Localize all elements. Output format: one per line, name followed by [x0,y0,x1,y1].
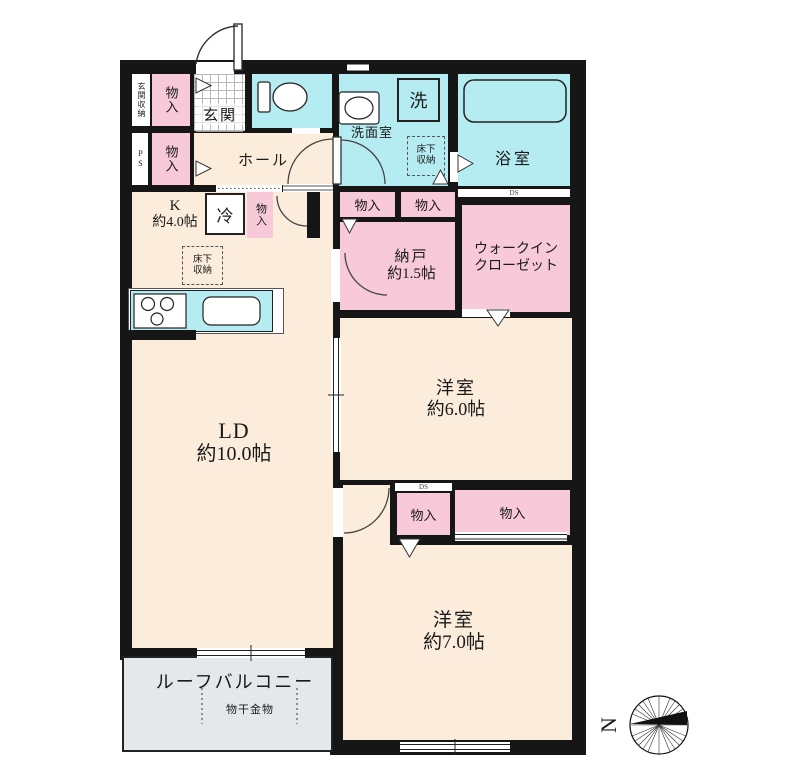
storage-g-label: 物入 [499,503,525,522]
refrigerator: 冷 [205,193,245,235]
sliding-door-storage-g [455,532,567,541]
walk-in-closet: ウォークイン クローゼット [462,205,570,312]
nando-door-gap [331,249,340,302]
hall-sliding-track [283,184,333,192]
vestibule-door-gap [333,488,343,537]
hall: ホール [194,133,333,185]
walk-in-closet-label: ウォークイン クローゼット [474,242,558,274]
underfloor-storage-washroom-label: 床下収納 [416,145,435,167]
pipe-space-label: PS [136,149,144,169]
duct-space-2-label: DS [419,483,428,491]
storage-g: 物入 [455,490,570,535]
underfloor-storage-kitchen: 床下収納 [182,246,223,285]
storage-c-label: 物入 [255,203,266,227]
kitchen-living-dining [132,192,333,648]
storage-c: 物入 [247,192,273,238]
underfloor-storage-kitchen-label: 床下収納 [193,255,212,277]
window-western7-south [400,742,510,752]
western-room-6: 洋室 約6.0帖 [340,318,572,480]
entrance-storage-label: 玄関収納 [137,82,145,118]
roof-balcony [122,656,333,752]
compass-icon [630,696,688,754]
refrigerator-label: 冷 [217,202,234,227]
storage-f-label: 物入 [410,505,436,524]
washing-machine-label: 洗 [410,87,428,113]
duct-space-1-label: DS [510,189,519,197]
duct-space-1: DS [458,189,570,197]
hall-open-boundary [216,185,282,192]
bath-doorway-gap [450,152,458,182]
sliding-door-ld-western6 [331,338,341,452]
western-room-7-vestibule [343,485,390,740]
kitchen-counter [130,290,273,332]
storage-e-label: 物入 [415,195,441,214]
wall-stub-kitchen [307,192,320,238]
bathroom [458,74,570,186]
toilet-room [252,74,332,128]
washing-machine: 洗 [397,78,440,122]
storage-e: 物入 [401,192,455,217]
underfloor-storage-washroom: 床下収納 [407,136,445,176]
western-room-7 [390,545,572,740]
top-wall-vent [347,64,369,71]
western-room-6-label: 洋室 約6.0帖 [427,378,486,419]
storage-d-label: 物入 [354,195,380,214]
pipe-space: PS [132,133,148,185]
toilet-doorway-gap [292,128,320,134]
storage-d: 物入 [340,192,395,217]
wic-doorway-gap [462,309,510,317]
storage-b-label: 物入 [165,145,178,173]
storage-room-nando-label: 納戸 約1.5帖 [387,249,436,284]
entrance [194,74,245,131]
compass-north-label: N [596,710,626,740]
storage-a: 物入 [152,74,190,126]
storage-b: 物入 [152,133,190,185]
kitchen-half-wall [126,330,196,340]
entrance-storage: 玄関収納 [132,74,150,126]
storage-room-nando: 納戸 約1.5帖 [340,222,455,310]
storage-f: 物入 [397,493,450,535]
window-ld-balcony [197,648,305,658]
entrance-doorway-gap [196,62,234,74]
duct-space-2: DS [395,483,452,491]
hall-label: ホール [238,149,289,170]
floorplan: ルーフバルコニー 物干金物 玄関収納 物入 玄関 洗面室 洗 床下収納 浴室 P… [0,0,800,779]
storage-a-label: 物入 [165,86,178,114]
